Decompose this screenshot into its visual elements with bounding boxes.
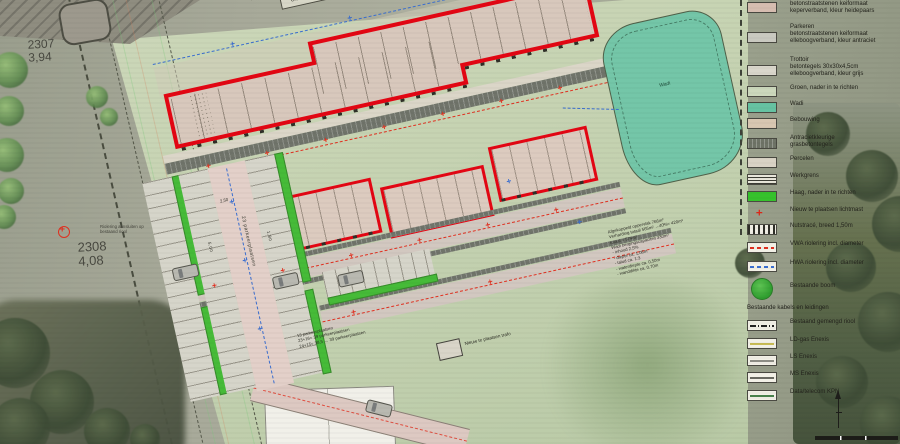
- tree: [86, 86, 108, 108]
- swatch-percelen: [747, 157, 777, 168]
- legend-panel: betonstraatstenen keiformaatkeperverband…: [745, 0, 900, 444]
- swatch-ms: [747, 372, 777, 383]
- swatch-werkgrens: [747, 174, 777, 185]
- swatch-nutstrace: [747, 224, 777, 235]
- legend-row-ms: MS Enexis: [747, 371, 899, 382]
- swatch-parkeren: [747, 32, 777, 43]
- swatch-bebouwing: [747, 118, 777, 129]
- swatch-wadi: [747, 102, 777, 113]
- swatch-riool: [747, 320, 777, 331]
- swatch-rijbaan: [747, 2, 777, 13]
- swatch-haag: [747, 191, 777, 202]
- swatch-ls: [747, 355, 777, 366]
- werkgrens-dashed-line: [740, 0, 742, 235]
- tree: [0, 178, 24, 204]
- legend-row-ls: LS Enexis: [747, 354, 899, 365]
- legend-row-riool: Bestaand gemengd riool: [747, 319, 899, 330]
- lichtmast-icon: +: [756, 206, 763, 219]
- swatch-grasbetontegels: [747, 138, 777, 149]
- tree: [0, 96, 24, 126]
- legend-row-vwa: VWA riolering incl. diameter: [747, 241, 899, 252]
- swatch-hwa: [747, 261, 777, 272]
- legend-section-title: Bestaande kabels en leidingen: [747, 305, 899, 312]
- cadastral-label-2307: 23073,94: [27, 37, 55, 65]
- site-plan-drawing: 23073,94 23084,08 + Riolering aansluiten…: [0, 0, 900, 444]
- swatch-groen: [747, 86, 777, 97]
- tree: [0, 205, 16, 229]
- sewer-connection-marker: +: [58, 226, 70, 238]
- swatch-trottoir: [747, 65, 777, 76]
- tree: [100, 108, 118, 126]
- scale-bar: [815, 436, 898, 440]
- legend-row-kpn: Data/telecom KPN: [747, 389, 899, 400]
- cadastral-label-2308: 23084,08: [77, 239, 107, 269]
- tree-icon: [751, 278, 773, 300]
- sewer-note: Riolering aansluiten opbestaand riool: [100, 224, 162, 235]
- swatch-vwa: [747, 242, 777, 253]
- legend-row-hwa: HWA riolering incl. diameter: [747, 260, 899, 271]
- tree: [0, 138, 24, 172]
- tree: [0, 52, 28, 88]
- swatch-kpn: [747, 390, 777, 401]
- swatch-ldgas: [747, 338, 777, 349]
- legend-row-ldgas: LD-gas Enexis: [747, 337, 899, 348]
- north-arrow-icon: [838, 398, 839, 428]
